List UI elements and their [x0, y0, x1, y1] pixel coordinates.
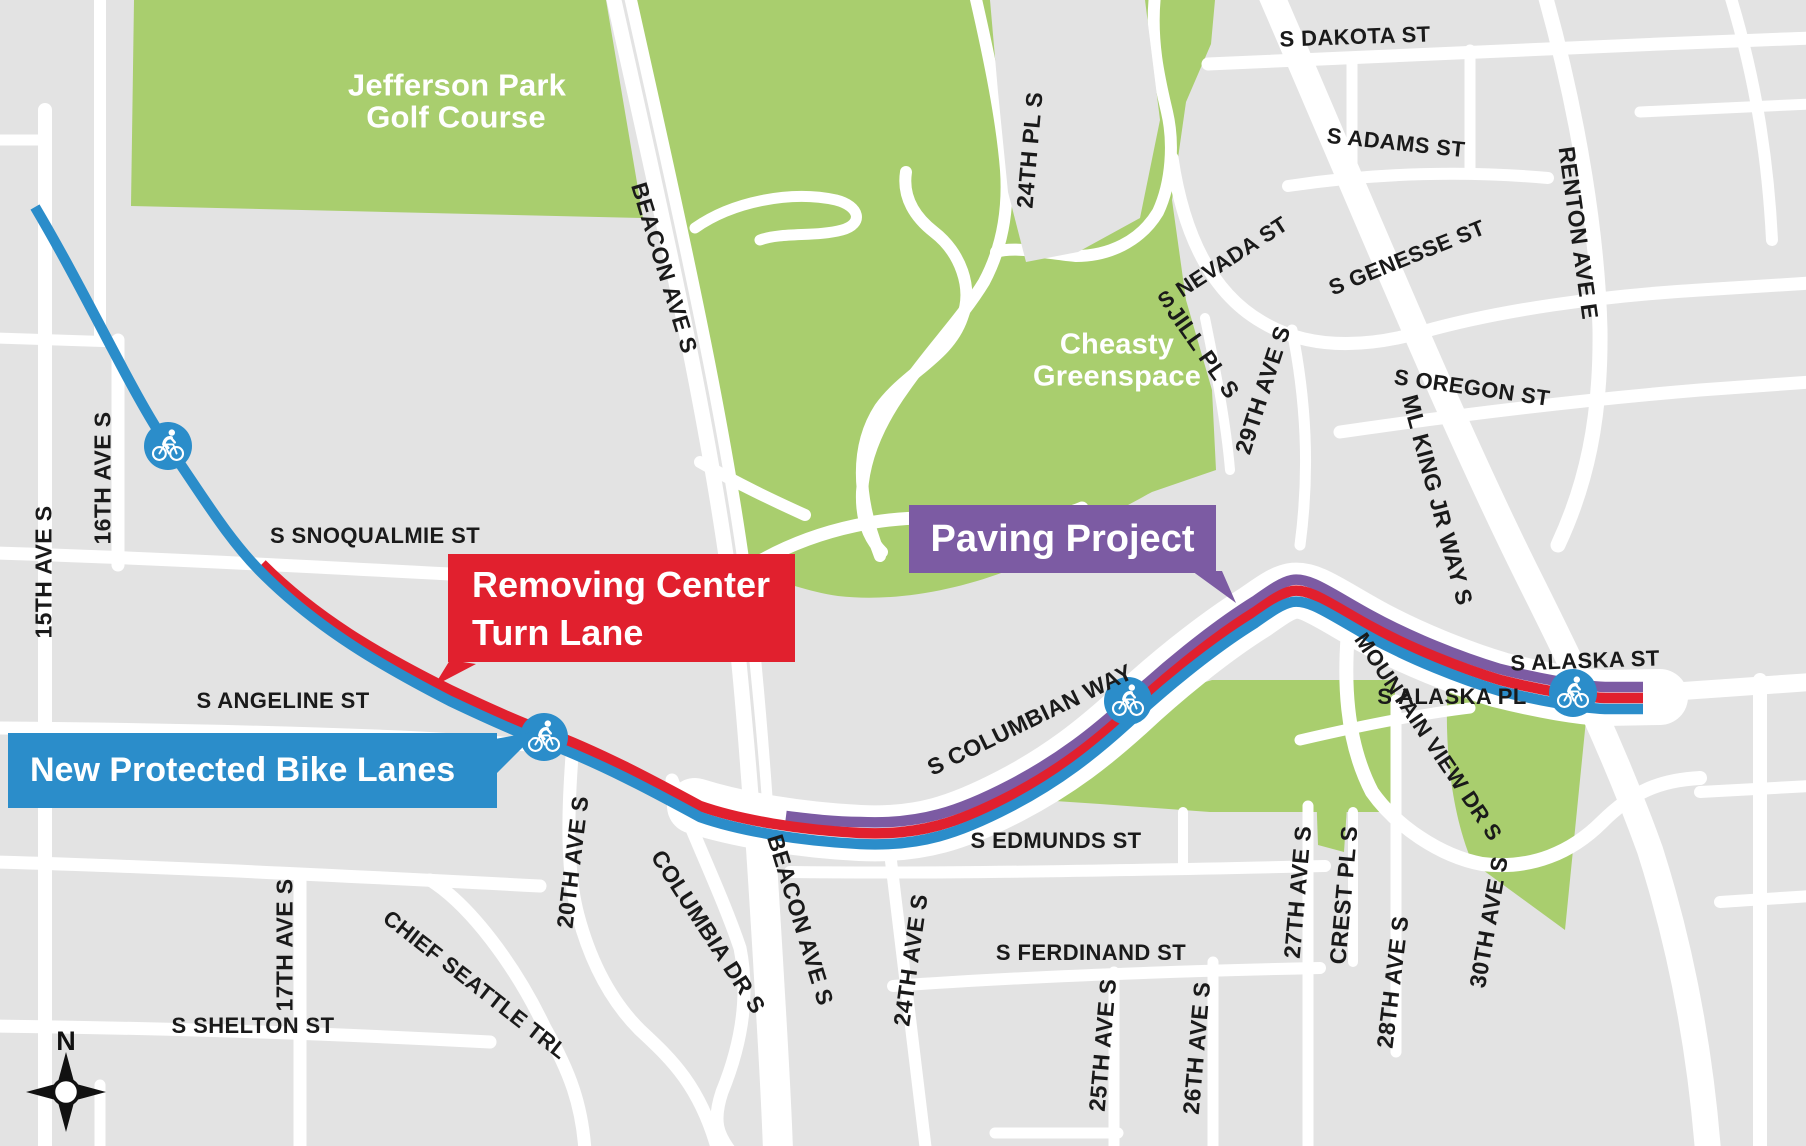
callout-new-protected-bike-lanes: New Protected Bike Lanes: [8, 733, 497, 808]
label-s-dakota-st: S DAKOTA ST: [1279, 23, 1431, 50]
callout-paving-pointer: [1192, 571, 1238, 607]
compass-north-label: N: [56, 1026, 76, 1056]
callout-bike-pointer: [495, 725, 541, 779]
bike-route-marker: [144, 422, 192, 470]
callout-paving-project: Paving Project: [909, 505, 1216, 573]
label-s-angeline-st: S ANGELINE ST: [196, 690, 369, 712]
callout-removing-pointer: [432, 660, 482, 690]
callout-removing-center-turn-lane: Removing Center Turn Lane: [448, 554, 795, 662]
compass-rose: N: [16, 1026, 116, 1146]
label-15th-ave-s: 15TH AVE S: [33, 505, 56, 638]
label-16th-ave-s: 16TH AVE S: [92, 411, 115, 544]
callout-paving-label: Paving Project: [931, 518, 1195, 560]
label-s-ferdinand-st: S FERDINAND ST: [996, 942, 1186, 964]
label-17th-ave-s: 17TH AVE S: [274, 878, 297, 1011]
callout-bike-label: New Protected Bike Lanes: [8, 733, 497, 808]
paving-project-map: N S SNOQUALMIE ST15TH AVE S16TH AVE SS A…: [0, 0, 1806, 1146]
callout-removing-line2: Turn Lane: [448, 609, 795, 657]
label-golf-line2: Golf Course: [366, 102, 546, 133]
compass-center: [54, 1080, 79, 1105]
label-s-snoqualmie-st: S SNOQUALMIE ST: [270, 525, 480, 547]
label-s-edmunds-st: S EDMUNDS ST: [970, 830, 1141, 852]
label-s-alaska-st: S ALASKA ST: [1510, 647, 1660, 674]
label-cheasty-line2: Greenspace: [1033, 363, 1201, 392]
callout-removing-line1: Removing Center: [448, 561, 795, 609]
label-s-alaska-pl: S ALASKA PL: [1377, 686, 1526, 708]
label-cheasty-line1: Cheasty: [1060, 331, 1174, 360]
label-golf-line1: Jefferson Park: [348, 70, 566, 101]
bike-route-marker: [1549, 669, 1597, 717]
label-s-shelton-st: S SHELTON ST: [172, 1015, 335, 1037]
